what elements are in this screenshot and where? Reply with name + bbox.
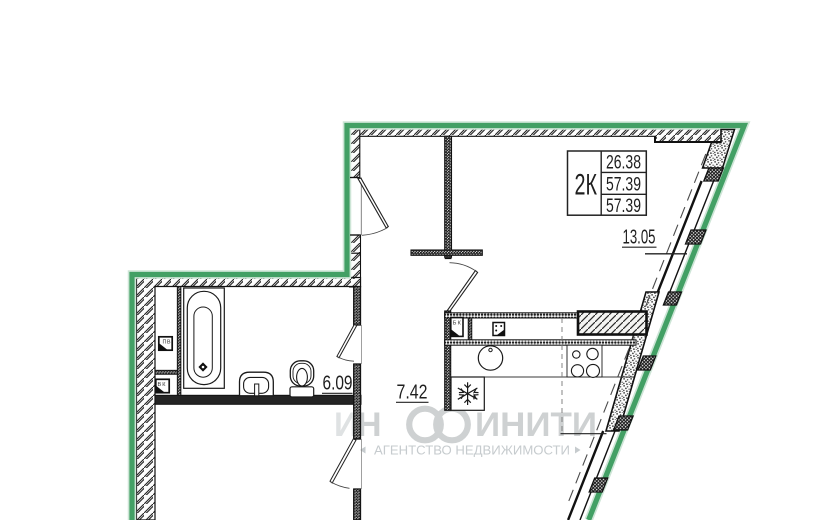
svg-text:13.05: 13.05: [623, 226, 656, 249]
svg-text:2К: 2К: [575, 169, 598, 202]
svg-text:7.42: 7.42: [397, 382, 428, 404]
svg-text:ИНИТИ: ИНИТИ: [475, 406, 597, 444]
svg-text:57.39: 57.39: [606, 195, 641, 217]
svg-text:ПВ: ПВ: [163, 340, 171, 346]
svg-text:6.09: 6.09: [323, 373, 353, 395]
svg-text:ВК: ВК: [158, 382, 167, 388]
svg-text:57.39: 57.39: [606, 174, 641, 196]
svg-text:БК: БК: [453, 321, 462, 327]
svg-text:АГЕНТСТВО НЕДВИЖИМОСТИ: АГЕНТСТВО НЕДВИЖИМОСТИ: [374, 444, 570, 458]
svg-text:26.38: 26.38: [606, 152, 641, 174]
